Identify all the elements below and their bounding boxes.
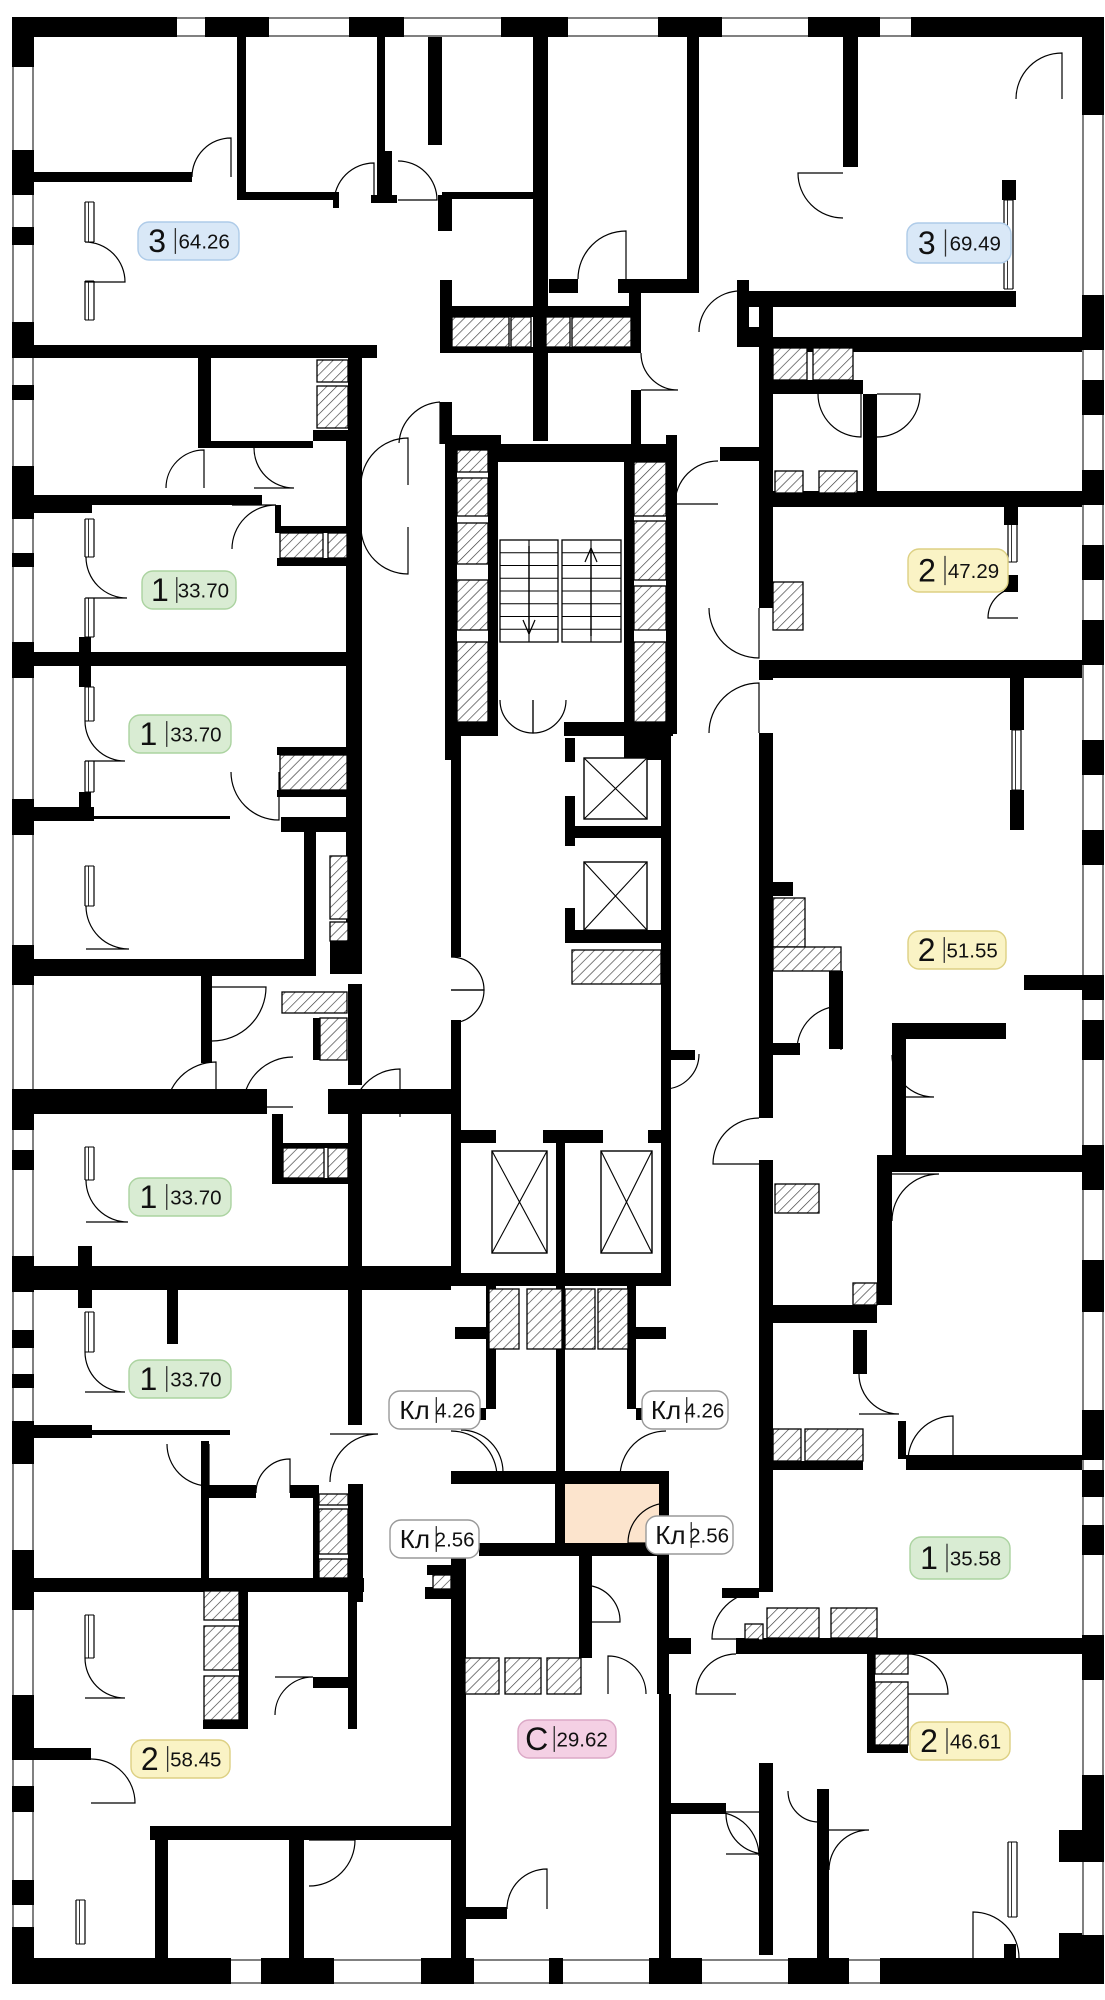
- svg-text:1: 1: [139, 1361, 157, 1397]
- svg-text:35.58: 35.58: [950, 1548, 1001, 1571]
- svg-text:51.55: 51.55: [946, 940, 997, 963]
- svg-text:2.56: 2.56: [435, 1529, 475, 1552]
- svg-text:3: 3: [918, 225, 936, 261]
- svg-text:33.70: 33.70: [170, 724, 221, 747]
- svg-text:33.70: 33.70: [170, 1369, 221, 1392]
- svg-text:33.70: 33.70: [170, 1187, 221, 1210]
- svg-text:2: 2: [920, 1723, 938, 1759]
- svg-text:2: 2: [918, 932, 936, 968]
- svg-text:46.61: 46.61: [950, 1731, 1001, 1754]
- svg-text:Кл: Кл: [651, 1395, 681, 1425]
- svg-text:64.26: 64.26: [179, 231, 230, 254]
- svg-text:2: 2: [918, 553, 936, 589]
- svg-text:С: С: [525, 1721, 548, 1757]
- svg-text:2: 2: [141, 1741, 159, 1777]
- svg-text:1: 1: [920, 1540, 938, 1576]
- svg-text:58.45: 58.45: [170, 1749, 221, 1772]
- svg-text:4.26: 4.26: [684, 1400, 724, 1423]
- svg-text:3: 3: [148, 223, 166, 259]
- svg-text:Кл: Кл: [399, 1395, 429, 1425]
- svg-text:Кл: Кл: [400, 1524, 430, 1554]
- svg-text:47.29: 47.29: [948, 560, 999, 583]
- svg-text:1: 1: [139, 716, 157, 752]
- svg-text:1: 1: [139, 1179, 157, 1215]
- svg-text:2.56: 2.56: [689, 1525, 729, 1548]
- svg-text:69.49: 69.49: [950, 233, 1001, 256]
- svg-text:33.70: 33.70: [178, 580, 229, 603]
- svg-text:29.62: 29.62: [556, 1729, 607, 1752]
- svg-text:4.26: 4.26: [435, 1400, 475, 1423]
- svg-text:Кл: Кл: [655, 1520, 685, 1550]
- svg-text:1: 1: [151, 572, 169, 608]
